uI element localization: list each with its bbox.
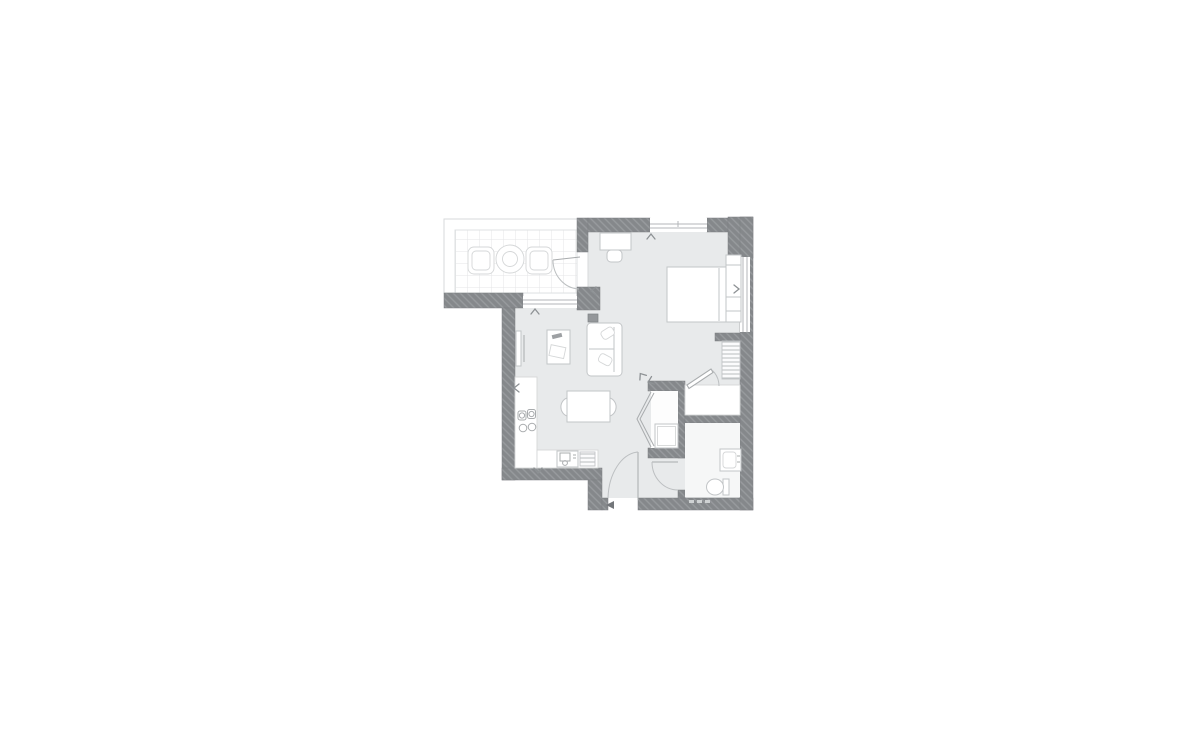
window-top-bedroom (650, 218, 707, 232)
washbasin (720, 449, 741, 471)
toilet (707, 479, 730, 495)
wall-left (502, 308, 515, 480)
window-living-left (523, 296, 577, 308)
wall-closet-bottom (648, 448, 685, 458)
wall-step-block (588, 480, 602, 510)
wall-balcony-door-lower-block (577, 287, 600, 310)
wall-top-right (707, 218, 728, 232)
shelved-unit (722, 341, 740, 379)
sofa (587, 323, 622, 376)
side-table (588, 314, 598, 322)
washing-machine-closet (655, 424, 678, 448)
double-bed (667, 267, 726, 322)
stool (607, 250, 622, 262)
storage-cupboard-interior (685, 385, 740, 415)
wall-top-left (588, 218, 650, 232)
wall-closet-top (648, 381, 685, 391)
threshold-dashes (689, 500, 710, 503)
wall-balcony-bottom (444, 293, 523, 308)
wall-bathroom-jamb (678, 490, 685, 498)
balcony-armchair-right (526, 247, 552, 274)
floor-plan-canvas (0, 0, 1200, 733)
wall-storage-bathroom-divider (685, 415, 740, 423)
wall-bottom-right (638, 498, 753, 510)
washing-machine-kitchen (557, 451, 578, 467)
striped-appliance (580, 452, 595, 466)
balcony (444, 219, 588, 293)
dining-table (567, 391, 610, 422)
balcony-armchair-left (468, 247, 494, 274)
floor-plan-drawing (0, 0, 1200, 733)
wall-bedroom-stub (715, 333, 740, 341)
balcony-round-table (496, 245, 524, 273)
desk (600, 233, 631, 250)
dining-set (561, 391, 616, 422)
coffee-table (547, 330, 570, 364)
wall-bottom-left (502, 468, 602, 480)
wall-entry-jamb-left (602, 498, 608, 510)
wall-balcony-door-upper (577, 218, 588, 252)
